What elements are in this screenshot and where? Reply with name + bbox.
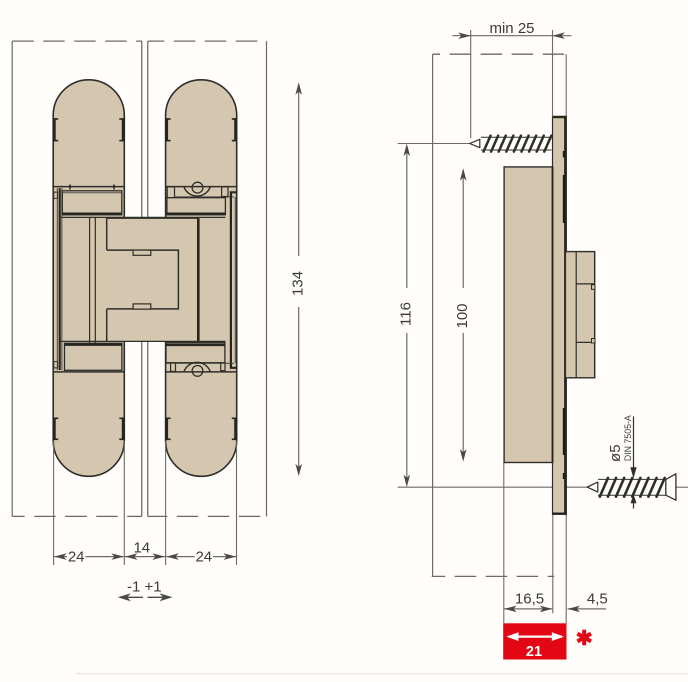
svg-text:21: 21	[526, 644, 542, 660]
svg-text:100: 100	[454, 303, 471, 328]
svg-text:116: 116	[397, 302, 414, 326]
svg-text:DIN 7505-A: DIN 7505-A	[623, 415, 633, 461]
svg-text:24: 24	[195, 549, 212, 566]
svg-text:4,5: 4,5	[587, 590, 608, 607]
svg-text:16,5: 16,5	[515, 590, 544, 607]
svg-text:ø5: ø5	[607, 444, 624, 462]
svg-text:24: 24	[68, 549, 85, 566]
svg-text:min 25: min 25	[489, 20, 534, 37]
svg-text:134: 134	[289, 271, 306, 296]
svg-text:14: 14	[133, 539, 150, 556]
svg-text:-1 +1: -1 +1	[127, 579, 162, 596]
